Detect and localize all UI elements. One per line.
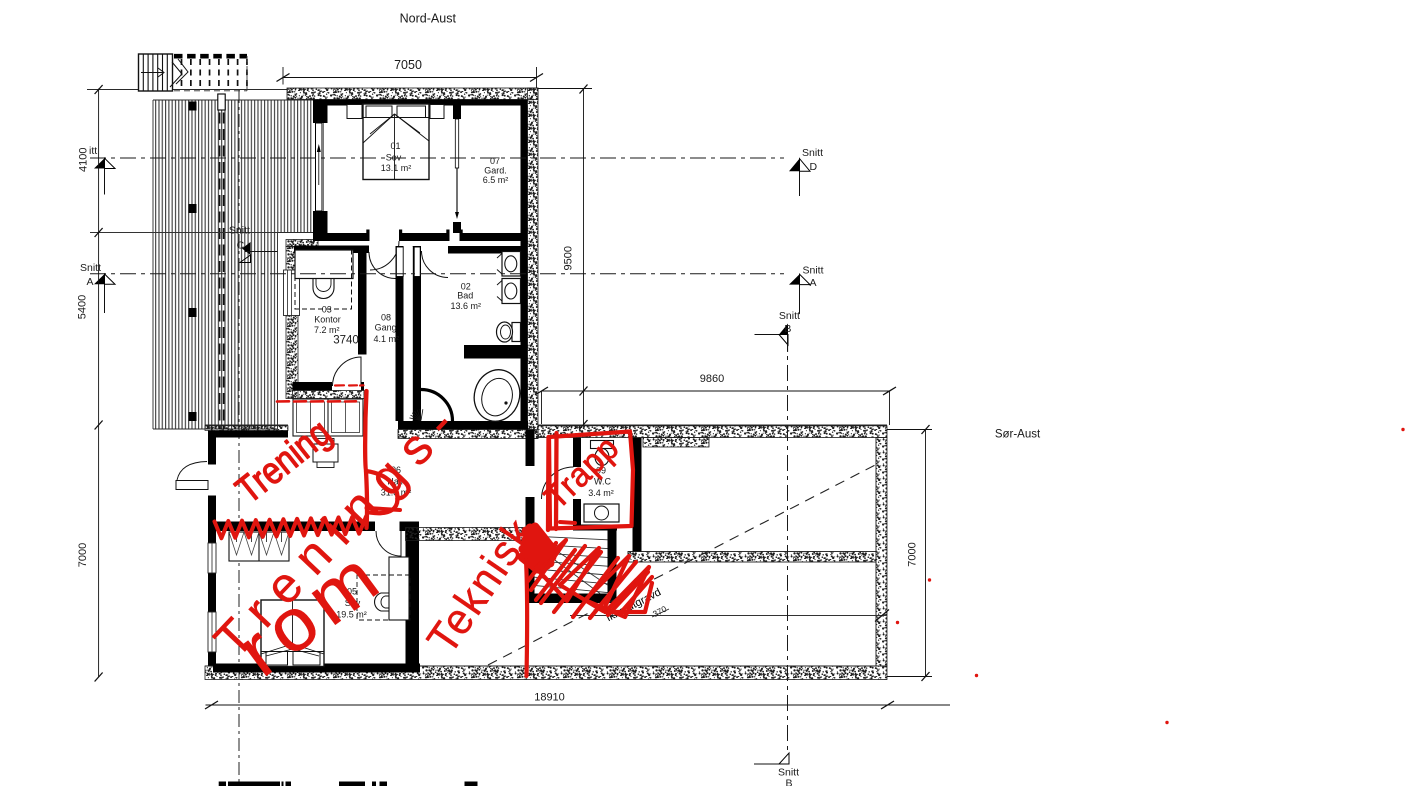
svg-text:370: 370 [651, 604, 668, 619]
svg-text:7000: 7000 [77, 543, 89, 567]
svg-text:4100: 4100 [78, 147, 90, 171]
svg-text:B: B [784, 323, 791, 335]
svg-text:Snitt: Snitt [80, 262, 101, 274]
svg-text:Sov: Sov [386, 152, 402, 162]
svg-text:A: A [810, 277, 817, 289]
svg-text:7000: 7000 [907, 542, 919, 566]
svg-text:3740: 3740 [333, 335, 359, 347]
svg-text:03: 03 [322, 304, 332, 314]
svg-text:Snitt: Snitt [803, 265, 824, 277]
svg-text:Snitt: Snitt [802, 147, 823, 159]
svg-text:9860: 9860 [700, 373, 724, 385]
svg-text:Snitt: Snitt [229, 225, 250, 237]
svg-text:01: 01 [390, 141, 400, 151]
svg-text:Nord-Aust: Nord-Aust [400, 12, 457, 26]
svg-text:07: 07 [490, 156, 500, 166]
svg-text:Bad: Bad [457, 291, 473, 301]
svg-text:7050: 7050 [394, 58, 422, 72]
svg-text:4.1 m²: 4.1 m² [373, 334, 399, 344]
svg-text:18910: 18910 [534, 692, 565, 704]
svg-text:Kontor: Kontor [314, 315, 341, 325]
svg-text:9500: 9500 [563, 246, 575, 270]
svg-text:B: B [786, 778, 793, 787]
svg-text:Snitt: Snitt [779, 310, 800, 322]
svg-text:Gang: Gang [375, 322, 397, 332]
svg-text:6.5 m²: 6.5 m² [483, 175, 509, 185]
svg-text:Sør-Aust: Sør-Aust [995, 429, 1041, 441]
svg-text:5400: 5400 [77, 295, 89, 319]
svg-text:08: 08 [381, 312, 391, 322]
svg-text:Gard.: Gard. [484, 166, 507, 176]
svg-text:C: C [237, 240, 245, 252]
svg-text:13.1 m²: 13.1 m² [381, 163, 412, 173]
svg-text:D: D [810, 161, 818, 173]
svg-text:A: A [87, 276, 94, 288]
svg-text:13.6 m²: 13.6 m² [451, 301, 482, 311]
svg-text:itt: itt [89, 145, 97, 157]
